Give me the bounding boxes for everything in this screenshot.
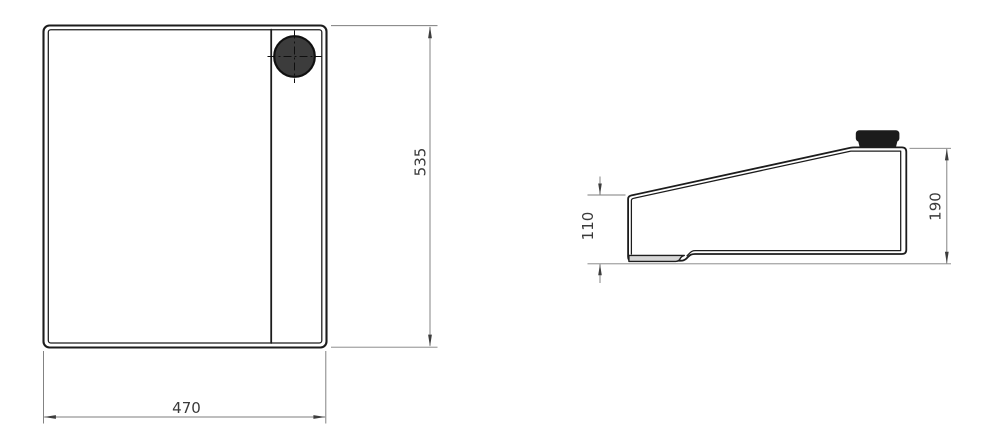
arrow-down-icon (428, 335, 432, 347)
dim-label-side-left-height: 110 (579, 212, 597, 241)
technical-drawing: 535 470 110 190 (0, 0, 1000, 438)
filler-cap-side-top (856, 130, 900, 142)
arrow-right-icon (313, 415, 325, 419)
dim-label-side-right-height: 190 (927, 192, 945, 221)
arrow-up-icon (945, 149, 949, 161)
side-view-outer-wall (628, 147, 906, 260)
arrow-up-icon (598, 264, 602, 275)
arrow-down-icon (945, 252, 949, 264)
dimension-front-width: 470 (44, 351, 326, 424)
arrow-down-icon (598, 184, 602, 195)
dimension-front-height: 535 (331, 26, 438, 348)
side-view-foot-pad (629, 255, 684, 261)
arrow-up-icon (428, 26, 432, 38)
side-view (628, 130, 906, 261)
arrow-left-icon (44, 415, 56, 419)
dimension-side-right-height: 190 (910, 148, 952, 263)
front-view (44, 26, 327, 348)
dim-label-front-height: 535 (412, 148, 430, 177)
dim-label-front-width: 470 (172, 399, 201, 417)
drawing-canvas: 535 470 110 190 (0, 0, 1000, 438)
